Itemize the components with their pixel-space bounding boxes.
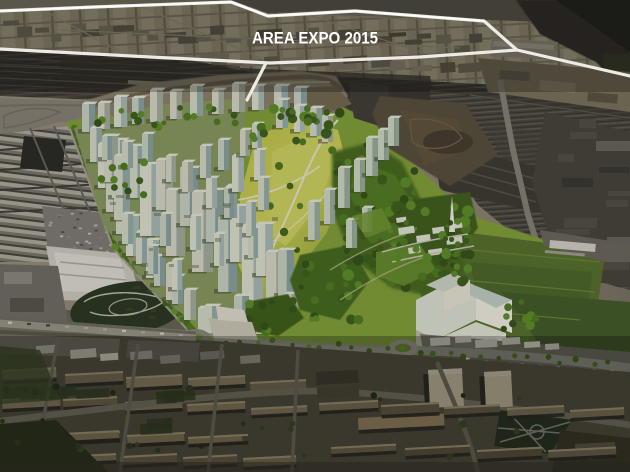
svg-text:AREA EXPO 2015: AREA EXPO 2015 xyxy=(252,30,378,48)
